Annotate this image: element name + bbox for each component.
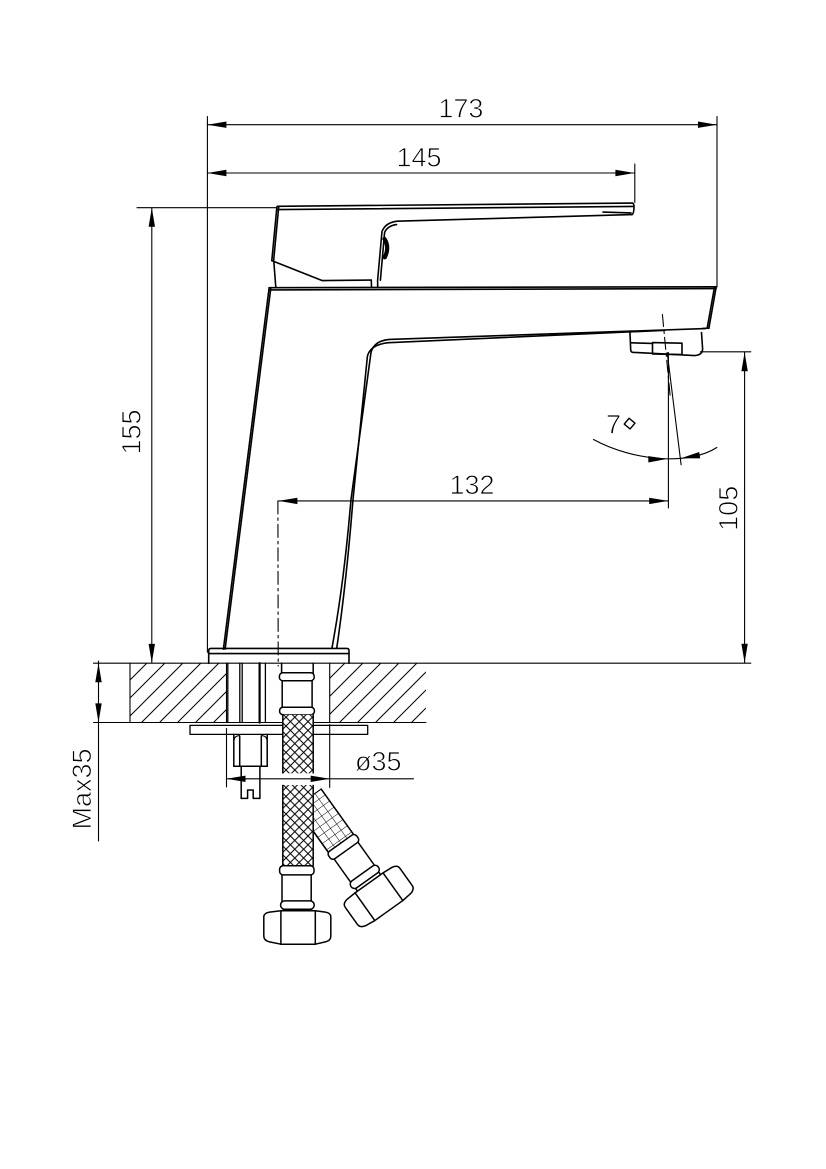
- svg-text:7: 7: [606, 410, 621, 440]
- svg-text:173: 173: [438, 93, 483, 123]
- svg-text:ø35: ø35: [355, 746, 402, 776]
- svg-text:132: 132: [449, 470, 494, 500]
- svg-text:155: 155: [116, 409, 146, 454]
- svg-text:Max35: Max35: [67, 748, 97, 829]
- svg-text:105: 105: [714, 486, 744, 531]
- svg-text:145: 145: [396, 143, 441, 173]
